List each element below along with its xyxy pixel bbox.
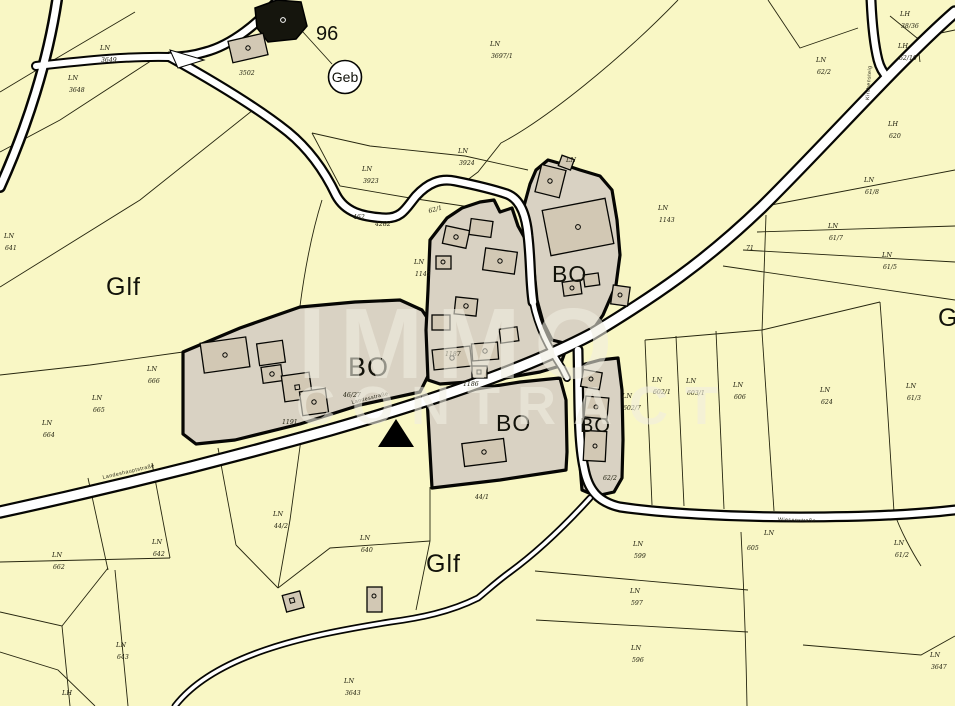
parcel-label: LN: [361, 165, 372, 173]
parcel-label: LN: [905, 382, 916, 390]
parcel-number: 62/10: [899, 55, 917, 62]
parcel-number: 61/3: [907, 395, 921, 402]
zone-label: Glf: [938, 304, 955, 332]
parcel-number: 597: [631, 600, 643, 607]
parcel-number: 624: [821, 399, 833, 406]
parcel-label: LN: [146, 365, 157, 373]
parcel-number: 662: [53, 564, 65, 571]
map-svg: GlfGlfGlfBOBOBOBOLandeshauptstraßeLandes…: [0, 0, 955, 706]
parcel-number: 61/2: [895, 552, 909, 559]
parcel-label: LN: [863, 176, 874, 184]
parcel-label: LN: [881, 251, 892, 259]
parcel-number: 1143: [659, 217, 675, 224]
zone-label: BO: [552, 261, 587, 287]
geb-label: Geb: [332, 69, 359, 85]
parcel-label: LN: [929, 651, 940, 659]
parcel-number: 605: [747, 545, 759, 552]
parcel-label: LN: [343, 677, 354, 685]
parcel-label: LN: [51, 551, 62, 559]
geb-callout: Geb: [329, 61, 362, 94]
parcel-number: 665: [93, 407, 105, 414]
parcel-label: LH: [887, 120, 898, 128]
parcel-number: 1145: [415, 271, 431, 278]
house-number-label: 96: [316, 23, 338, 45]
parcel-number: 3648: [69, 87, 85, 94]
parcel-label: LN: [413, 258, 424, 266]
building: [469, 219, 493, 238]
building: [367, 587, 382, 612]
parcel-label: LN: [99, 44, 110, 52]
parcel-label: LN: [827, 222, 838, 230]
parcel-number: 38/36: [901, 23, 919, 30]
parcel-number: 3502: [239, 70, 255, 77]
parcel-number: 3697/1: [491, 53, 513, 60]
parcel-number: 596: [632, 657, 644, 664]
parcel-number: 62/2: [603, 475, 617, 482]
parcel-number: 44/2: [273, 523, 288, 530]
parcel-number: 620: [889, 133, 901, 140]
parcel-label: LN: [91, 394, 102, 402]
parcel-label: LN: [115, 641, 126, 649]
parcel-label: LN: [359, 534, 370, 542]
parcel-label: LN: [67, 74, 78, 82]
parcel-label: LH: [897, 42, 908, 50]
parcel-number: 643: [117, 654, 129, 661]
building: [462, 439, 506, 467]
building: [282, 591, 304, 612]
parcel-label: LN: [630, 644, 641, 652]
parcel-number: 61/5: [883, 264, 897, 271]
building: [261, 365, 283, 384]
parcel-number: 606: [734, 394, 746, 401]
parcel-number: 61/8: [865, 189, 879, 196]
parcel-number: 642: [153, 551, 165, 558]
parcel-number: 71: [746, 245, 754, 252]
parcel-label: LN: [893, 539, 904, 547]
building: [436, 256, 451, 269]
parcel-number: 3647: [931, 664, 947, 671]
parcel-label: LN: [457, 147, 468, 155]
building: [257, 340, 286, 365]
parcel-number: 62/2: [817, 69, 831, 76]
parcel-number: 599: [634, 553, 646, 560]
parcel-number: 664: [43, 432, 55, 439]
building: [483, 248, 518, 274]
parcel-number: 4282: [374, 221, 391, 228]
parcel-label: LN: [629, 587, 640, 595]
parcel-label: LN: [151, 538, 162, 546]
parcel-number: 44/1: [474, 494, 489, 501]
parcel-label: LN: [815, 56, 826, 64]
parcel-number: 462: [352, 214, 365, 221]
parcel-number: 640: [361, 547, 373, 554]
parcel-number: 61/7: [829, 235, 843, 242]
parcel-label: LN: [657, 204, 668, 212]
zone-label: Glf: [106, 273, 141, 301]
parcel-label: LN: [763, 529, 774, 537]
watermark-line2: CONTRACT: [296, 376, 735, 436]
parcel-label: LN: [41, 419, 52, 427]
parcel-label: LN: [3, 232, 14, 240]
parcel-label: LH: [899, 10, 910, 18]
building: [200, 337, 250, 373]
parcel-label: LN: [632, 540, 643, 548]
parcel-label: LH: [61, 689, 72, 697]
parcel-number: 3924: [459, 160, 475, 167]
parcel-label: LN: [565, 156, 576, 164]
parcel-label: LN: [819, 386, 830, 394]
parcel-number: 3643: [345, 690, 361, 697]
parcel-label: LN: [489, 40, 500, 48]
cadastral-map-canvas: GlfGlfGlfBOBOBOBOLandeshauptstraßeLandes…: [0, 0, 955, 706]
parcel-label: LN: [272, 510, 283, 518]
parcel-number: 641: [5, 245, 17, 252]
zone-label: Glf: [426, 550, 461, 578]
parcel-number: 666: [148, 378, 160, 385]
parcel-number: 3923: [363, 178, 379, 185]
parcel-number: 3649: [101, 57, 117, 64]
